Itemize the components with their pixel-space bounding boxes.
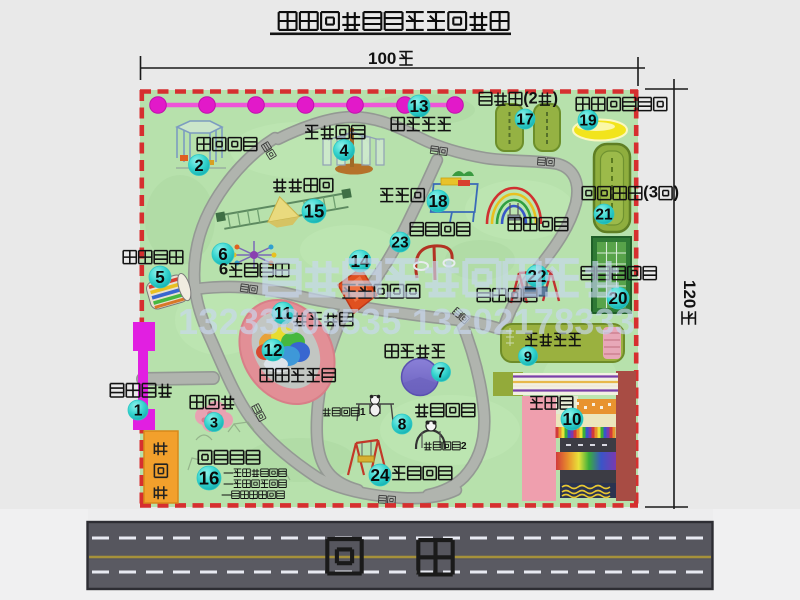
svg-text:1: 1 — [360, 407, 366, 418]
svg-text:3: 3 — [210, 415, 218, 431]
svg-text:10: 10 — [562, 410, 581, 429]
svg-text:2: 2 — [529, 89, 538, 107]
svg-text:2: 2 — [461, 441, 467, 452]
svg-text:7: 7 — [437, 365, 445, 381]
svg-text:4: 4 — [339, 142, 348, 160]
svg-text:1: 1 — [134, 403, 143, 420]
svg-text:): ) — [674, 183, 680, 202]
svg-text:2: 2 — [194, 157, 203, 175]
svg-text:100: 100 — [368, 49, 396, 68]
svg-text:23: 23 — [391, 235, 409, 252]
svg-text:19: 19 — [579, 113, 597, 130]
svg-text:120: 120 — [680, 280, 699, 308]
svg-text:13: 13 — [409, 97, 428, 116]
svg-text:17: 17 — [516, 112, 533, 129]
svg-text:18: 18 — [428, 192, 447, 211]
svg-text:9: 9 — [524, 349, 532, 365]
svg-text:—: — — [224, 467, 234, 478]
svg-text:—: — — [224, 478, 234, 489]
svg-text:13233806535 13202178333: 13233806535 13202178333 — [178, 301, 635, 342]
svg-text:16: 16 — [199, 468, 220, 489]
svg-text:15: 15 — [304, 201, 325, 222]
svg-text:24: 24 — [370, 466, 390, 485]
svg-text:): ) — [553, 89, 558, 107]
svg-text:6: 6 — [219, 260, 228, 279]
svg-text:12: 12 — [263, 341, 282, 360]
svg-text:—: — — [222, 489, 232, 500]
svg-text:3: 3 — [649, 183, 658, 202]
svg-text:21: 21 — [595, 207, 613, 224]
svg-text:5: 5 — [155, 268, 165, 287]
svg-text:8: 8 — [398, 417, 407, 434]
